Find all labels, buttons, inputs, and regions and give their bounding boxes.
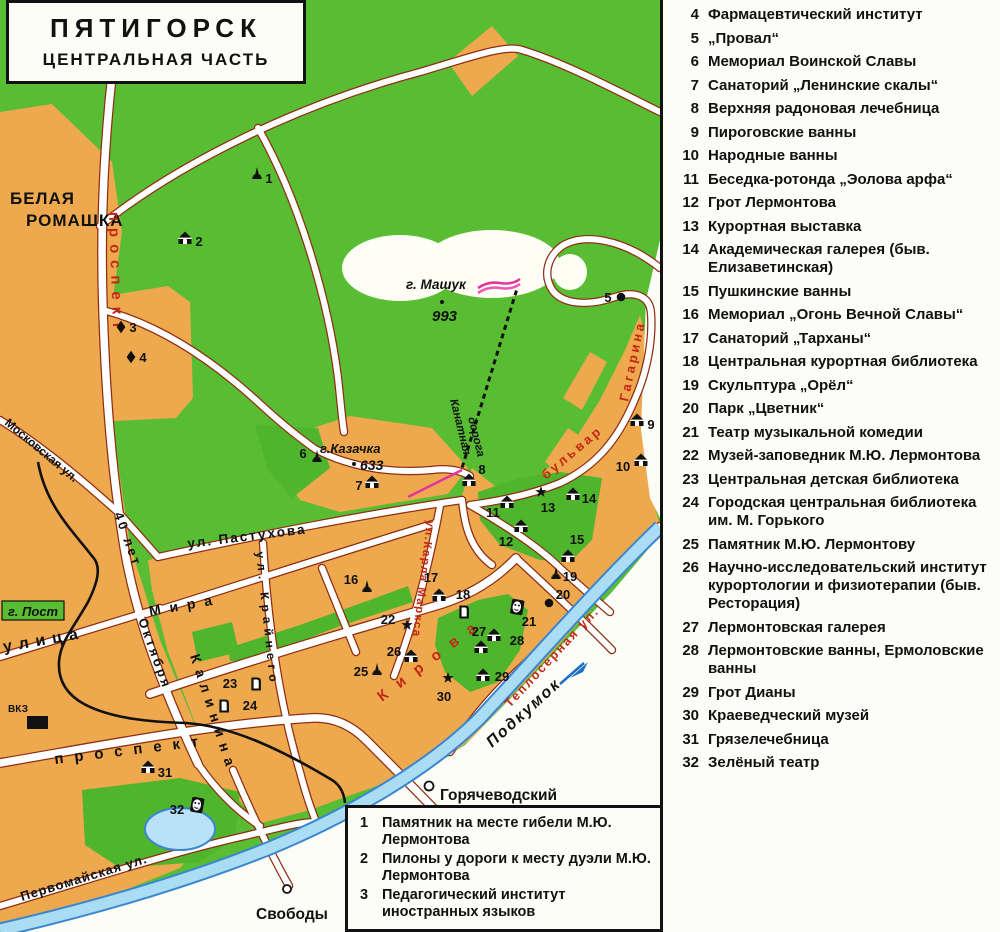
map-title-box: ПЯТИГОРСК ЦЕНТРАЛЬНАЯ ЧАСТЬ bbox=[6, 0, 306, 84]
svg-text:9: 9 bbox=[647, 417, 654, 432]
legend-item-31: 31Грязелечебница bbox=[669, 731, 998, 749]
legend-item-22: 22Музей-заповедник М.Ю. Лермонтова bbox=[669, 447, 998, 465]
peak-mashuk-elev: 993 bbox=[432, 308, 458, 325]
district-label-1: БЕЛАЯ bbox=[10, 189, 75, 208]
map-area[interactable]: г. Пост БЕЛАЯ РОМАШКА проспект 40 лет Ок… bbox=[0, 0, 660, 932]
svg-text:6: 6 bbox=[299, 446, 306, 461]
railway-station-box bbox=[27, 716, 48, 729]
svg-text:15: 15 bbox=[570, 532, 584, 547]
svg-text:23: 23 bbox=[223, 676, 237, 691]
svg-text:27: 27 bbox=[472, 624, 486, 639]
legend-item-12: 12Грот Лермонтова bbox=[669, 194, 998, 212]
legend-item-10: 10Народные ванны bbox=[669, 147, 998, 165]
legend-item-20: 20Парк „Цветник“ bbox=[669, 400, 998, 418]
map-subtitle: ЦЕНТРАЛЬНАЯ ЧАСТЬ bbox=[9, 50, 303, 70]
svg-text:29: 29 bbox=[495, 669, 509, 684]
svg-text:3: 3 bbox=[129, 320, 136, 335]
legend-item-8: 8Верхняя радоновая лечебница bbox=[669, 100, 998, 118]
legend-item-24: 24Городская центральная библиотека им. М… bbox=[669, 494, 998, 530]
legend-item-16: 16Мемориал „Огонь Вечной Славы“ bbox=[669, 306, 998, 324]
legend-item-32: 32Зелёный театр bbox=[669, 754, 998, 772]
legend-item-4: 4Фармацевтический институт bbox=[669, 6, 998, 24]
svg-text:30: 30 bbox=[437, 689, 451, 704]
goryachevodsky-marker bbox=[425, 782, 434, 791]
place-vkz: ВКЗ bbox=[8, 704, 28, 715]
place-goryachevodsky: Горячеводский bbox=[440, 787, 557, 804]
legend-item-17: 17Санаторий „Тарханы“ bbox=[669, 330, 998, 348]
svg-text:25: 25 bbox=[354, 664, 368, 679]
map-title: ПЯТИГОРСК bbox=[9, 13, 303, 44]
svg-text:13: 13 bbox=[541, 500, 555, 515]
svg-text:11: 11 bbox=[486, 505, 500, 520]
legend-item-11: 11Беседка-ротонда „Эолова арфа“ bbox=[669, 171, 998, 189]
legend-box-1-3: 1 Памятник на месте гибели М.Ю. Лермонто… bbox=[345, 805, 663, 932]
legend-item-30: 30Краеведческий музей bbox=[669, 707, 998, 725]
legend-item-6: 6Мемориал Воинской Славы bbox=[669, 53, 998, 71]
rail-post-station: г. Пост bbox=[2, 601, 64, 620]
legend-item-9: 9Пироговские ванны bbox=[669, 124, 998, 142]
svobody-marker bbox=[283, 885, 291, 893]
svg-text:31: 31 bbox=[158, 765, 172, 780]
legend-item-2: 2 Пилоны у дороги к месту дуэли М.Ю. Лер… bbox=[360, 851, 652, 884]
legend-item-26: 26Научно-исследовательский институт куро… bbox=[669, 559, 998, 613]
legend-item-18: 18Центральная курортная библиотека bbox=[669, 353, 998, 371]
svg-text:12: 12 bbox=[499, 534, 513, 549]
svg-text:2: 2 bbox=[195, 234, 202, 249]
peak-kazachka-label: г.Казачка bbox=[320, 441, 381, 456]
svg-text:14: 14 bbox=[582, 491, 597, 506]
legend-item-29: 29Грот Дианы bbox=[669, 684, 998, 702]
peak-kazachka-elev: 633 bbox=[360, 457, 384, 473]
svg-text:10: 10 bbox=[616, 459, 630, 474]
legend-item-25: 25Памятник М.Ю. Лермонтову bbox=[669, 536, 998, 554]
svg-text:21: 21 bbox=[522, 614, 536, 629]
legend-item-15: 15Пушкинские ванны bbox=[669, 283, 998, 301]
city-map[interactable]: г. Пост БЕЛАЯ РОМАШКА проспект 40 лет Ок… bbox=[0, 0, 660, 932]
svg-text:18: 18 bbox=[456, 587, 470, 602]
legend-item-23: 23Центральная детская библиотека bbox=[669, 471, 998, 489]
svg-text:32: 32 bbox=[170, 802, 184, 817]
legend-item-13: 13Курортная выставка bbox=[669, 218, 998, 236]
legend-item-21: 21Театр музыкальной комедии bbox=[669, 424, 998, 442]
place-svobody: Свободы bbox=[256, 906, 328, 923]
legend-item-28: 28Лермонтовские ванны, Ермоловские ванны bbox=[669, 642, 998, 678]
legend-item-14: 14Академическая галерея (быв. Елизаветин… bbox=[669, 241, 998, 277]
svg-text:4: 4 bbox=[139, 350, 147, 365]
svg-text:19: 19 bbox=[563, 569, 577, 584]
legend-item-27: 27Лермонтовская галерея bbox=[669, 619, 998, 637]
svg-text:8: 8 bbox=[478, 462, 485, 477]
post-station-label: г. Пост bbox=[8, 604, 59, 619]
svg-text:16: 16 bbox=[344, 572, 358, 587]
svg-text:22: 22 bbox=[381, 612, 395, 627]
legend-panel: 4Фармацевтический институт 5„Провал“ 6Ме… bbox=[660, 0, 1000, 932]
pyatigorsk-city-map-page: г. Пост БЕЛАЯ РОМАШКА проспект 40 лет Ок… bbox=[0, 0, 1000, 932]
legend-item-1: 1 Памятник на месте гибели М.Ю. Лермонто… bbox=[360, 815, 652, 848]
svg-text:5: 5 bbox=[604, 290, 611, 305]
peak-mashuk-label: г. Машук bbox=[406, 277, 467, 292]
legend-item-7: 7Санаторий „Ленинские скалы“ bbox=[669, 77, 998, 95]
svg-text:26: 26 bbox=[387, 644, 401, 659]
legend-item-5: 5„Провал“ bbox=[669, 30, 998, 48]
svg-text:24: 24 bbox=[243, 698, 258, 713]
svg-text:7: 7 bbox=[355, 478, 362, 493]
svg-text:17: 17 bbox=[424, 570, 438, 585]
legend-item-19: 19Скульптура „Орёл“ bbox=[669, 377, 998, 395]
legend-item-3: 3 Педагогический институт иностранных яз… bbox=[360, 887, 652, 920]
svg-text:20: 20 bbox=[556, 587, 570, 602]
svg-text:28: 28 bbox=[510, 633, 524, 648]
svg-text:1: 1 bbox=[265, 171, 272, 186]
